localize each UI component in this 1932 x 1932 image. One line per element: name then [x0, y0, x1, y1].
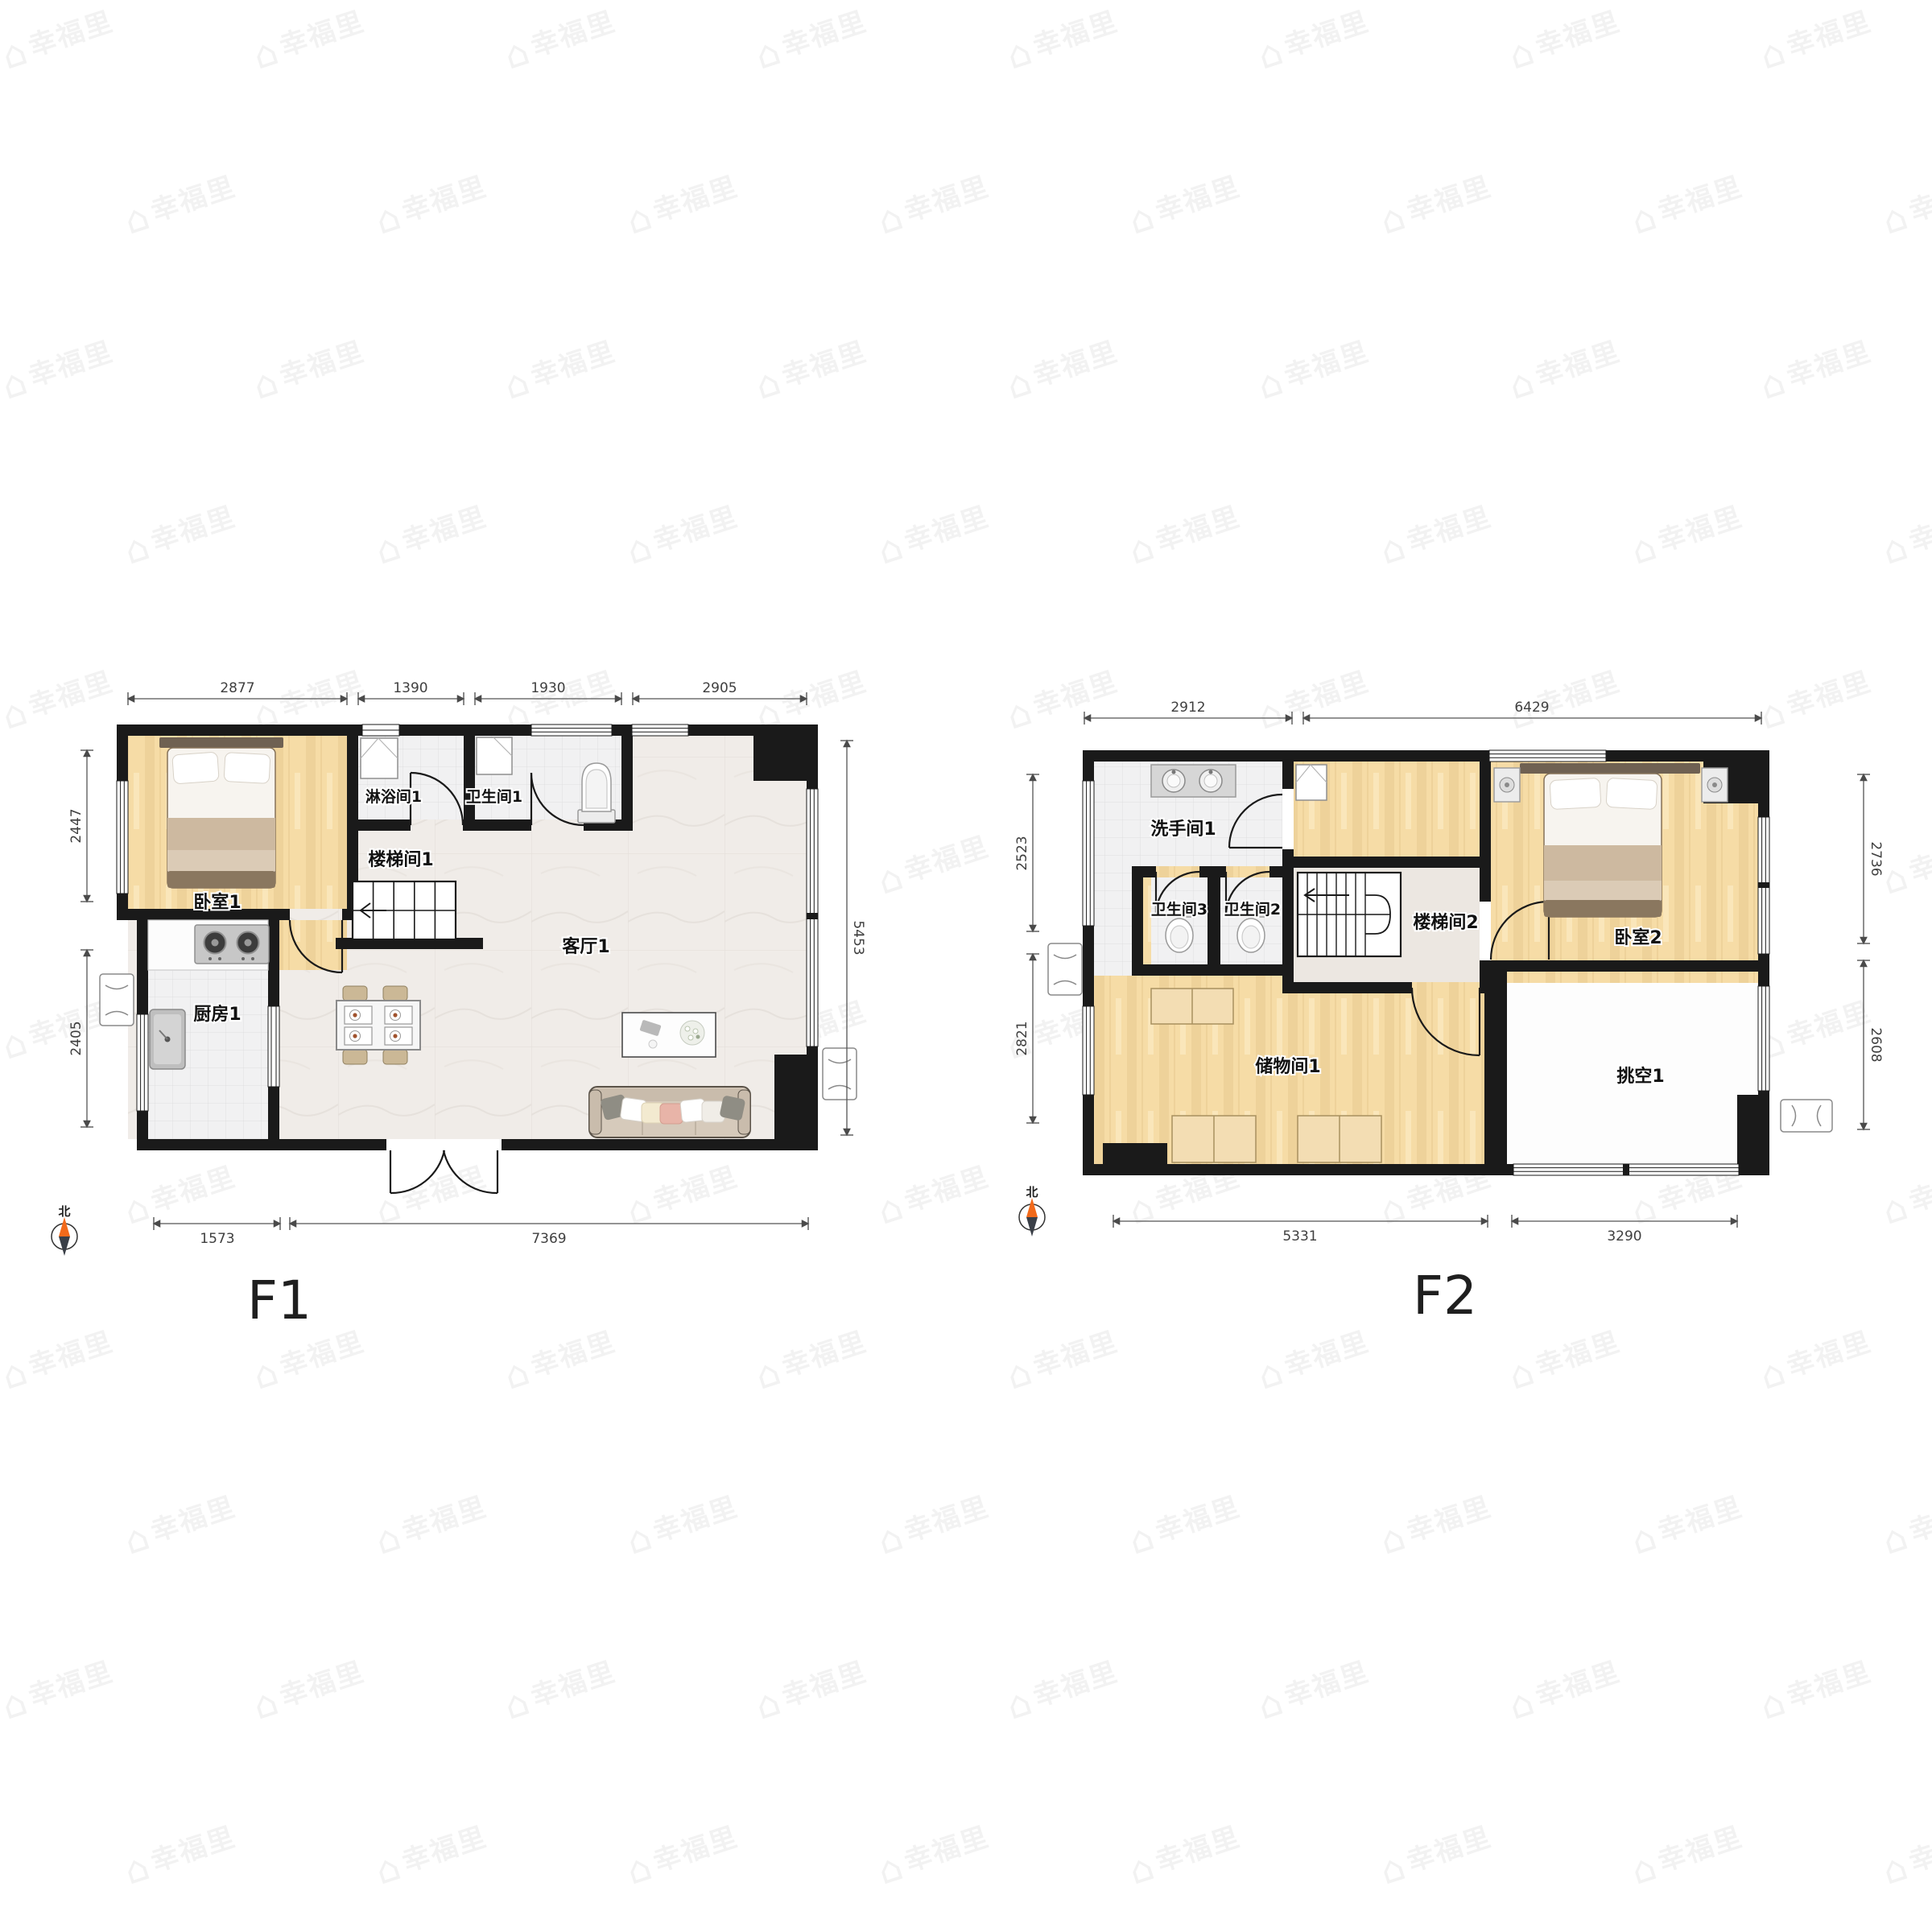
svg-text:2905: 2905: [702, 680, 737, 696]
watermark-house-icon: ⌂: [749, 29, 786, 78]
watermark-tile: ⌂幸福里: [1754, 0, 1877, 78]
watermark-house-icon: ⌂: [1123, 1844, 1160, 1893]
ac-unit-right-icon: [823, 1048, 857, 1100]
watermark-house-icon: ⌂: [749, 1679, 786, 1728]
room-label-toilet3: 卫生间3: [1151, 900, 1207, 919]
watermark-house-icon: ⌂: [118, 194, 155, 243]
svg-text:2447: 2447: [68, 808, 85, 843]
watermark-house-icon: ⌂: [1503, 29, 1540, 78]
room-label-bedroom1: 卧室1: [193, 892, 241, 913]
watermark-house-icon: ⌂: [749, 1349, 786, 1398]
watermark-tile: ⌂幸福里: [1374, 494, 1497, 573]
room-label-bedroom2: 卧室2: [1614, 927, 1662, 948]
toilet1-cabinet-icon: [477, 737, 512, 774]
watermark-house-icon: ⌂: [1123, 1514, 1160, 1563]
svg-text:2736: 2736: [1868, 841, 1884, 876]
watermark-house-icon: ⌂: [118, 1514, 155, 1563]
compass-f1-icon: 北: [52, 1204, 77, 1256]
watermark-tile: ⌂幸福里: [247, 329, 370, 408]
window-void-bottom: [1513, 1164, 1739, 1175]
window-void-right: [1758, 986, 1769, 1091]
watermark-tile: ⌂幸福里: [118, 1484, 242, 1563]
window-top-living-a: [531, 724, 612, 736]
floor-title-f2: F2: [1413, 1265, 1477, 1327]
window-top-shower: [362, 724, 399, 736]
svg-text:5453: 5453: [850, 920, 866, 955]
watermark-house-icon: ⌂: [0, 1679, 34, 1728]
watermark-house-icon: ⌂: [1374, 194, 1411, 243]
svg-text:1930: 1930: [530, 680, 565, 696]
kitchen-sink-icon: [150, 1009, 185, 1069]
watermark-house-icon: ⌂: [872, 1844, 909, 1893]
watermark-house-icon: ⌂: [247, 1679, 284, 1728]
watermark-house-icon: ⌂: [1876, 194, 1913, 243]
watermark-house-icon: ⌂: [1503, 1349, 1540, 1398]
svg-text:1390: 1390: [393, 680, 427, 696]
watermark-tile: ⌂幸福里: [749, 0, 873, 78]
watermark-tile: ⌂幸福里: [498, 1649, 621, 1728]
watermark-house-icon: ⌂: [1123, 524, 1160, 573]
watermark-tile: ⌂幸福里: [1876, 164, 1932, 243]
compass-f2-icon: 北: [1019, 1185, 1045, 1236]
svg-text:2912: 2912: [1170, 700, 1205, 716]
watermark-tile: ⌂幸福里: [872, 164, 995, 243]
svg-text:2821: 2821: [1014, 1021, 1030, 1055]
watermark-house-icon: ⌂: [621, 194, 658, 243]
floor-title-f1: F1: [247, 1269, 312, 1331]
watermark-tile: ⌂幸福里: [1754, 329, 1877, 408]
watermark-tile: ⌂幸福里: [621, 1814, 744, 1893]
room-label-storage1: 储物间1: [1255, 1056, 1320, 1077]
watermark-house-icon: ⌂: [1252, 29, 1289, 78]
stairs1-icon: [353, 881, 456, 939]
svg-text:7369: 7369: [531, 1231, 566, 1247]
watermark-tile: ⌂幸福里: [1625, 1814, 1748, 1893]
watermark-tile: ⌂幸福里: [1503, 329, 1626, 408]
watermark-tile: ⌂幸福里: [118, 1814, 242, 1893]
watermark-house-icon: ⌂: [369, 524, 407, 573]
watermark-house-icon: ⌂: [1123, 194, 1160, 243]
watermark-house-icon: ⌂: [1001, 1349, 1038, 1398]
watermark-tile: ⌂幸福里: [1123, 1814, 1246, 1893]
room-label-toilet2: 卫生间2: [1224, 900, 1281, 919]
window-bedroom2-right: [1758, 817, 1769, 954]
room-label-stair2: 楼梯间2: [1413, 912, 1478, 933]
watermark-house-icon: ⌂: [1754, 1679, 1791, 1728]
watermark-tile: ⌂幸福里: [369, 164, 493, 243]
watermark-tile: ⌂幸福里: [1252, 0, 1375, 78]
watermark-tile: ⌂幸福里: [1123, 494, 1246, 573]
svg-text:5331: 5331: [1282, 1228, 1317, 1245]
svg-text:2405: 2405: [68, 1021, 85, 1055]
watermark-tile: ⌂幸福里: [1252, 1649, 1375, 1728]
window-bedroom1-left: [117, 781, 128, 894]
watermark-tile: ⌂幸福里: [872, 494, 995, 573]
watermark-tile: ⌂幸福里: [621, 494, 744, 573]
watermark-tile: ⌂幸福里: [1754, 1649, 1877, 1728]
watermark-tile: ⌂幸福里: [1876, 494, 1932, 573]
watermark-tile: ⌂幸福里: [118, 494, 242, 573]
watermark-house-icon: ⌂: [872, 194, 909, 243]
watermark-tile: ⌂幸福里: [1625, 1484, 1748, 1563]
watermark-house-icon: ⌂: [1374, 1514, 1411, 1563]
watermark-house-icon: ⌂: [1754, 1349, 1791, 1398]
ac-unit-f2-right-icon: [1781, 1100, 1832, 1132]
watermark-house-icon: ⌂: [369, 194, 407, 243]
watermark-house-icon: ⌂: [369, 1514, 407, 1563]
watermark-tile: ⌂幸福里: [1252, 329, 1375, 408]
floorplan-canvas: ⌂幸福里⌂幸福里⌂幸福里⌂幸福里⌂幸福里⌂幸福里⌂幸福里⌂幸福里⌂幸福里⌂幸福里…: [0, 0, 1932, 1932]
watermark-house-icon: ⌂: [1625, 1844, 1662, 1893]
watermark-house-icon: ⌂: [1876, 524, 1913, 573]
watermark-tile: ⌂幸福里: [0, 1649, 119, 1728]
window-top-living-b: [632, 724, 688, 736]
watermark-house-icon: ⌂: [1252, 359, 1289, 408]
floorplan-f2: 洗手间1 卫生间3 卫生间2 楼梯间2 卧室2 储物间1 挑空1 2912 64…: [998, 660, 1932, 1336]
corridor-cabinet-icon: [1296, 765, 1327, 800]
watermark-tile: ⌂幸福里: [1001, 329, 1124, 408]
watermark-house-icon: ⌂: [872, 1514, 909, 1563]
entry-double-door: [386, 1139, 502, 1193]
room-label-toilet1: 卫生间1: [466, 787, 522, 806]
watermark-house-icon: ⌂: [1625, 524, 1662, 573]
watermark-tile: ⌂幸福里: [1503, 0, 1626, 78]
watermark-house-icon: ⌂: [621, 524, 658, 573]
svg-text:2608: 2608: [1868, 1027, 1884, 1062]
watermark-house-icon: ⌂: [1374, 1844, 1411, 1893]
coffee-table-icon: [622, 1013, 716, 1057]
washroom-counter-icon: [1151, 765, 1236, 797]
watermark-house-icon: ⌂: [1625, 194, 1662, 243]
ac-unit-left-icon: [100, 974, 134, 1026]
watermark-tile: ⌂幸福里: [1374, 164, 1497, 243]
kitchen-sliding-door: [268, 1006, 279, 1087]
watermark-house-icon: ⌂: [247, 29, 284, 78]
stairs2-icon: [1298, 873, 1401, 956]
watermark-tile: ⌂幸福里: [0, 0, 119, 78]
watermark-tile: ⌂幸福里: [1001, 0, 1124, 78]
svg-text:2877: 2877: [220, 680, 254, 696]
floorplan-f1: 卧室1 淋浴间1 卫生间1 楼梯间1 客厅1 厨房1 2877 1390 193…: [48, 660, 934, 1336]
watermark-tile: ⌂幸福里: [118, 164, 242, 243]
watermark-tile: ⌂幸福里: [369, 1814, 493, 1893]
watermark-tile: ⌂幸福里: [1625, 494, 1748, 573]
watermark-house-icon: ⌂: [247, 1349, 284, 1398]
sofa-icon: [589, 1087, 750, 1137]
watermark-tile: ⌂幸福里: [369, 494, 493, 573]
watermark-tile: ⌂幸福里: [247, 1649, 370, 1728]
watermark-house-icon: ⌂: [1503, 1679, 1540, 1728]
watermark-tile: ⌂幸福里: [749, 1649, 873, 1728]
window-top-bedroom2: [1489, 750, 1606, 762]
watermark-tile: ⌂幸福里: [498, 0, 621, 78]
watermark-tile: ⌂幸福里: [0, 329, 119, 408]
shower-cabinet-icon: [361, 738, 398, 778]
svg-text:2523: 2523: [1014, 836, 1030, 870]
room-label-kitchen1: 厨房1: [193, 1004, 241, 1025]
window-washroom-left: [1083, 781, 1094, 926]
watermark-tile: ⌂幸福里: [1374, 1814, 1497, 1893]
watermark-tile: ⌂幸福里: [1123, 1484, 1246, 1563]
watermark-house-icon: ⌂: [118, 1844, 155, 1893]
watermark-tile: ⌂幸福里: [1374, 1484, 1497, 1563]
watermark-house-icon: ⌂: [0, 689, 34, 738]
watermark-house-icon: ⌂: [0, 29, 34, 78]
watermark-house-icon: ⌂: [0, 1019, 34, 1068]
watermark-house-icon: ⌂: [1001, 29, 1038, 78]
watermark-house-icon: ⌂: [1876, 1514, 1913, 1563]
svg-text:1573: 1573: [200, 1231, 234, 1247]
watermark-house-icon: ⌂: [1001, 1679, 1038, 1728]
svg-text:北: 北: [1026, 1185, 1038, 1199]
watermark-house-icon: ⌂: [1374, 524, 1411, 573]
room-label-living1: 客厅1: [562, 936, 609, 957]
watermark-house-icon: ⌂: [1625, 1514, 1662, 1563]
watermark-house-icon: ⌂: [498, 359, 535, 408]
svg-text:北: 北: [58, 1204, 70, 1219]
ac-unit-f2-left-icon: [1048, 943, 1082, 995]
watermark-tile: ⌂幸福里: [1625, 164, 1748, 243]
window-kitchen-left: [137, 1014, 148, 1111]
watermark-tile: ⌂幸福里: [621, 1484, 744, 1563]
watermark-house-icon: ⌂: [247, 359, 284, 408]
watermark-house-icon: ⌂: [498, 1349, 535, 1398]
watermark-tile: ⌂幸福里: [1123, 164, 1246, 243]
watermark-house-icon: ⌂: [0, 359, 34, 408]
watermark-house-icon: ⌂: [1503, 359, 1540, 408]
watermark-house-icon: ⌂: [1876, 1844, 1913, 1893]
kitchen-counter-icon: [148, 920, 269, 970]
watermark-house-icon: ⌂: [498, 1679, 535, 1728]
bed1-icon: [159, 737, 283, 888]
room-label-shower1: 淋浴间1: [365, 787, 422, 806]
svg-text:3290: 3290: [1607, 1228, 1641, 1245]
watermark-tile: ⌂幸福里: [749, 329, 873, 408]
watermark-house-icon: ⌂: [498, 29, 535, 78]
window-storage-left: [1083, 1006, 1094, 1095]
watermark-tile: ⌂幸福里: [1503, 1649, 1626, 1728]
watermark-tile: ⌂幸福里: [1876, 1814, 1932, 1893]
watermark-tile: ⌂幸福里: [872, 1814, 995, 1893]
watermark-house-icon: ⌂: [749, 359, 786, 408]
watermark-tile: ⌂幸福里: [1876, 1484, 1932, 1563]
watermark-tile: ⌂幸福里: [1001, 1649, 1124, 1728]
watermark-house-icon: ⌂: [1001, 359, 1038, 408]
toilet1-icon: [578, 763, 615, 823]
room-label-void1: 挑空1: [1616, 1066, 1664, 1087]
watermark-house-icon: ⌂: [369, 1844, 407, 1893]
window-living-right: [807, 789, 818, 1046]
watermark-tile: ⌂幸福里: [621, 164, 744, 243]
svg-text:6429: 6429: [1514, 700, 1549, 716]
watermark-house-icon: ⌂: [621, 1514, 658, 1563]
watermark-house-icon: ⌂: [0, 1349, 34, 1398]
watermark-house-icon: ⌂: [1252, 1349, 1289, 1398]
watermark-house-icon: ⌂: [1754, 29, 1791, 78]
watermark-tile: ⌂幸福里: [498, 329, 621, 408]
room-label-washroom1: 洗手间1: [1150, 819, 1216, 840]
watermark-house-icon: ⌂: [872, 524, 909, 573]
watermark-tile: ⌂幸福里: [247, 0, 370, 78]
watermark-tile: ⌂幸福里: [369, 1484, 493, 1563]
watermark-house-icon: ⌂: [1252, 1679, 1289, 1728]
watermark-house-icon: ⌂: [118, 524, 155, 573]
watermark-tile: ⌂幸福里: [872, 1484, 995, 1563]
watermark-house-icon: ⌂: [1754, 359, 1791, 408]
watermark-house-icon: ⌂: [621, 1844, 658, 1893]
room-label-stair1: 楼梯间1: [368, 849, 433, 870]
